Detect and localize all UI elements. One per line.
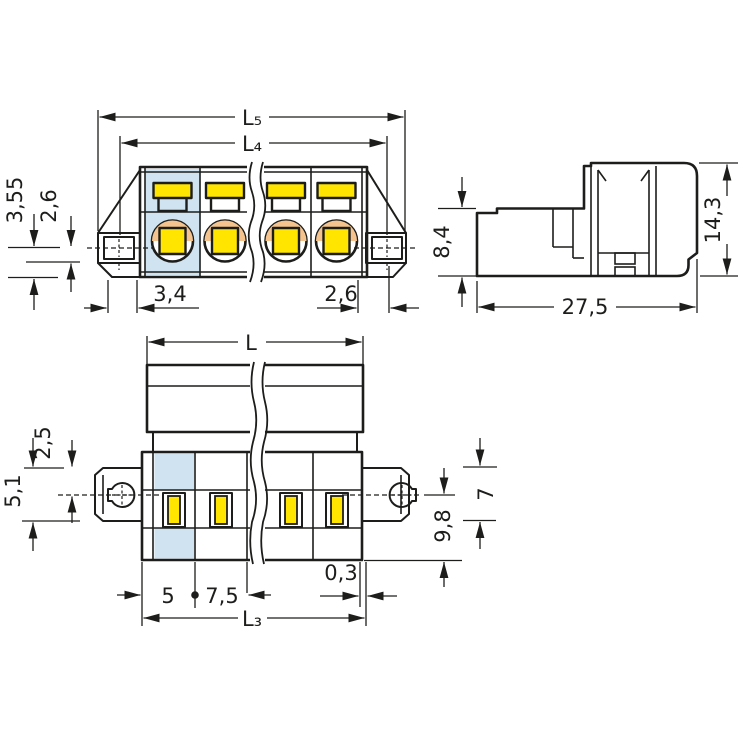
dim-7: 7 xyxy=(463,438,498,549)
pole-2 xyxy=(205,183,246,262)
top-view: L₅ L₄ 3,55 2,6 3,4 xyxy=(3,106,419,313)
dim-75-label: 7,5 xyxy=(205,584,238,608)
pole-3 xyxy=(266,183,307,262)
dim-34: 3,4 xyxy=(84,280,199,313)
dim-355-label: 3,55 xyxy=(3,177,27,224)
drawing-canvas: L₅ L₄ 3,55 2,6 3,4 xyxy=(0,0,750,750)
dim-275-label: 27,5 xyxy=(562,295,609,319)
dim-l5-label: L₅ xyxy=(242,106,262,130)
pin-2 xyxy=(210,493,232,527)
dim-l3-label: L₃ xyxy=(242,607,262,631)
dim-143-label: 14,3 xyxy=(701,197,725,244)
dim-03-label: 0,3 xyxy=(324,561,357,585)
dim-l3: L₃ xyxy=(144,607,365,631)
pin-1 xyxy=(163,493,185,527)
dim-7-label: 7 xyxy=(474,487,498,500)
dim-l4-label: L₄ xyxy=(242,132,262,156)
dimension-origin-dot xyxy=(191,591,199,599)
dim-84-label: 8,4 xyxy=(430,225,454,258)
dim-25-51: 2,5 5,1 xyxy=(1,426,80,551)
front-view: L 2,5 5,1 7 9,8 xyxy=(1,331,498,631)
right-mounting-flange xyxy=(354,233,418,270)
dim-84: 8,4 xyxy=(430,177,476,307)
first-pole-highlight-lower xyxy=(155,529,195,559)
dim-51-label: 5,1 xyxy=(1,474,25,507)
dim-143: 14,3 xyxy=(699,163,738,276)
dim-25-label: 2,5 xyxy=(31,426,55,459)
side-inner-lines xyxy=(553,166,656,276)
front-left-flange xyxy=(58,468,162,521)
pin-3 xyxy=(280,493,302,527)
side-profile xyxy=(477,163,697,276)
dim-34-label: 3,4 xyxy=(153,282,186,306)
dim-98-label: 9,8 xyxy=(431,509,455,542)
break-top-view xyxy=(247,161,265,283)
pole-4 xyxy=(316,183,357,262)
dim-03: 0,3 xyxy=(320,561,397,626)
dim-26-bottom-label: 2,6 xyxy=(324,282,357,306)
dim-355: 3,55 2,6 xyxy=(3,177,80,310)
first-pole-highlight-upper xyxy=(155,454,195,490)
dim-5-label: 5 xyxy=(161,584,174,608)
dim-26-left-label: 2,6 xyxy=(37,189,61,222)
left-wedge xyxy=(98,170,140,277)
dim-l-label: L xyxy=(245,331,257,355)
side-view: 8,4 14,3 27,5 xyxy=(430,163,738,319)
break-front-view xyxy=(250,361,267,564)
front-right-flange xyxy=(342,468,422,521)
dim-275: 27,5 xyxy=(477,259,697,319)
dim-98: 9,8 xyxy=(364,468,462,587)
pin-4 xyxy=(326,493,348,527)
left-mounting-flange xyxy=(87,233,152,270)
